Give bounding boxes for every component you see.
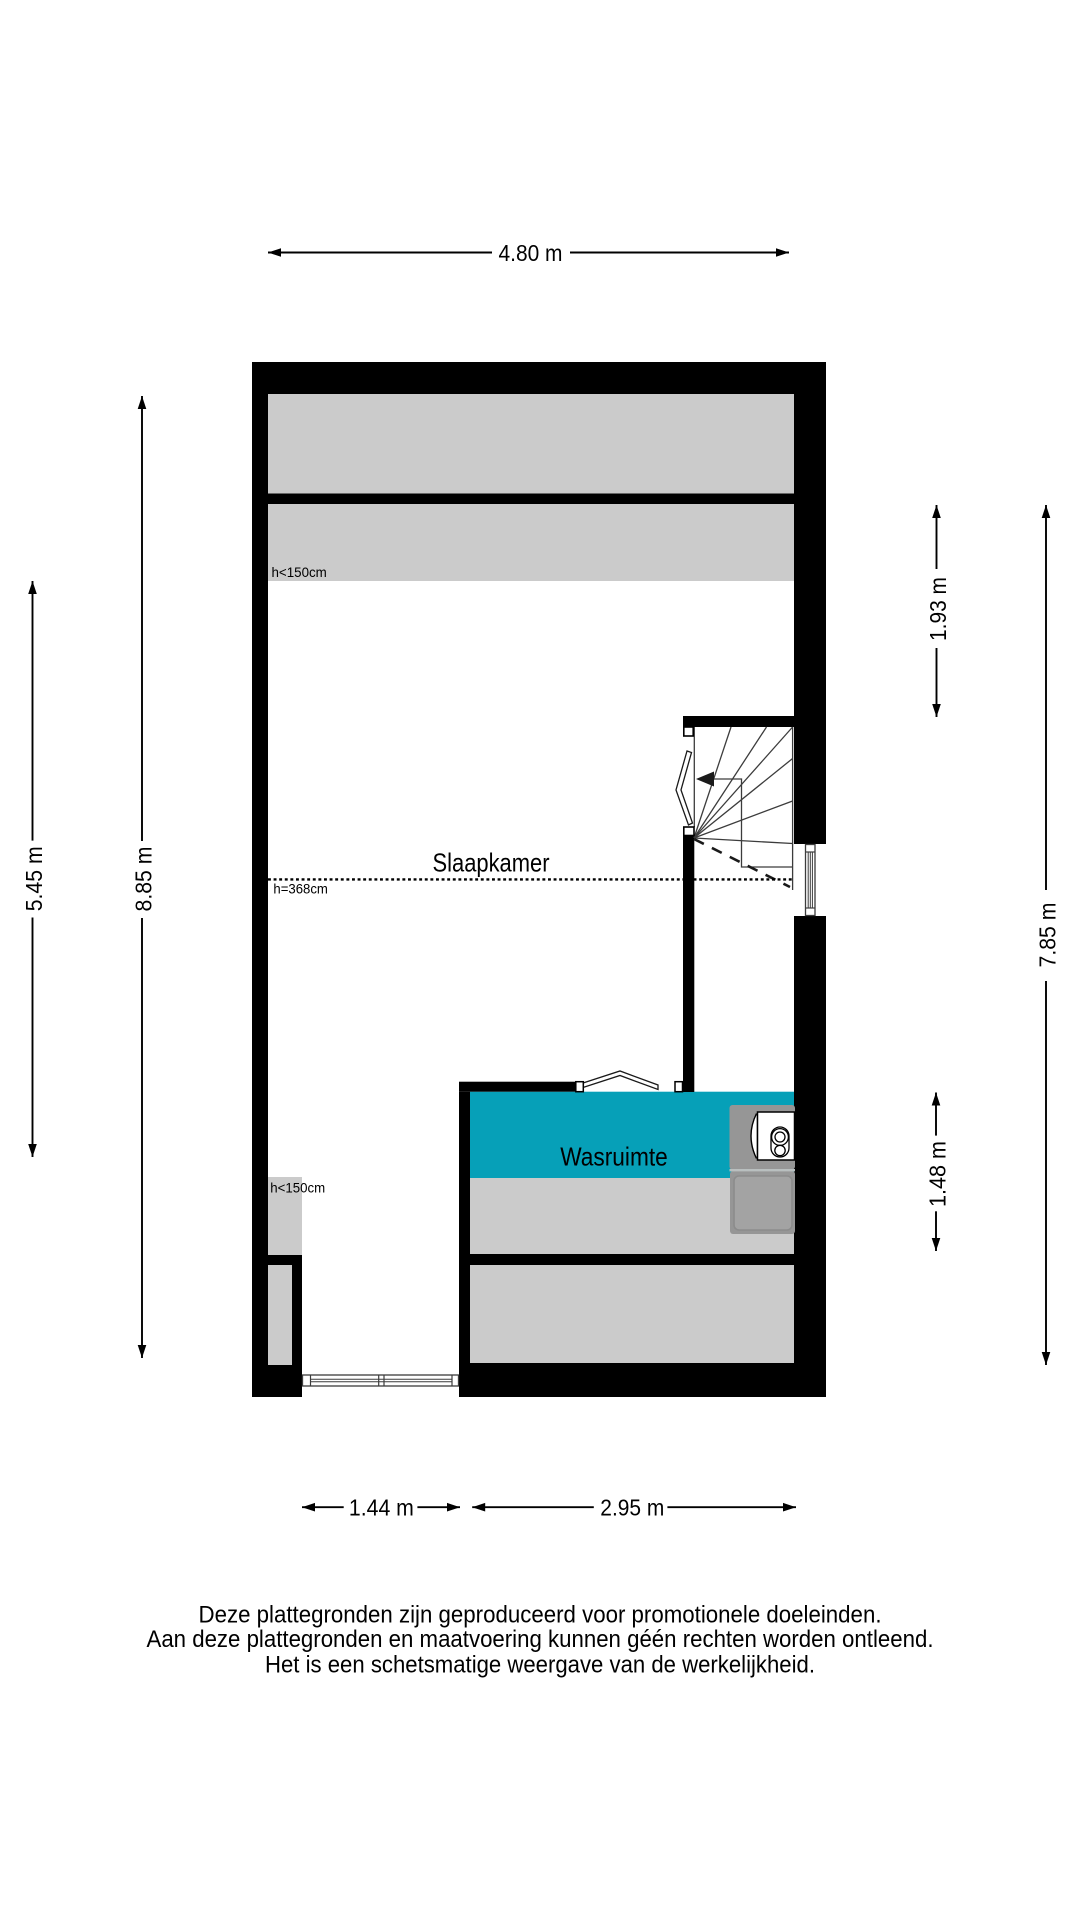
svg-text:h=368cm: h=368cm	[273, 881, 328, 897]
svg-text:8.85 m: 8.85 m	[131, 847, 157, 912]
svg-text:1.44 m: 1.44 m	[349, 1494, 414, 1520]
svg-text:1.48 m: 1.48 m	[925, 1141, 951, 1207]
svg-text:7.85 m: 7.85 m	[1035, 903, 1061, 968]
svg-text:Wasruimte: Wasruimte	[560, 1142, 668, 1172]
svg-text:Het is een schetsmatige weerga: Het is een schetsmatige weergave van de …	[265, 1651, 815, 1678]
svg-text:1.93 m: 1.93 m	[925, 577, 951, 641]
svg-text:Aan deze plattegronden en maat: Aan deze plattegronden en maatvoering ku…	[147, 1626, 934, 1653]
svg-text:2.95 m: 2.95 m	[600, 1494, 664, 1520]
svg-text:5.45 m: 5.45 m	[21, 846, 47, 911]
svg-text:h<150cm: h<150cm	[270, 1180, 325, 1196]
svg-text:h<150cm: h<150cm	[272, 564, 327, 580]
svg-text:Deze plattegronden zijn geprod: Deze plattegronden zijn geproduceerd voo…	[199, 1601, 882, 1628]
svg-text:Slaapkamer: Slaapkamer	[433, 847, 550, 877]
svg-text:4.80 m: 4.80 m	[499, 240, 563, 266]
